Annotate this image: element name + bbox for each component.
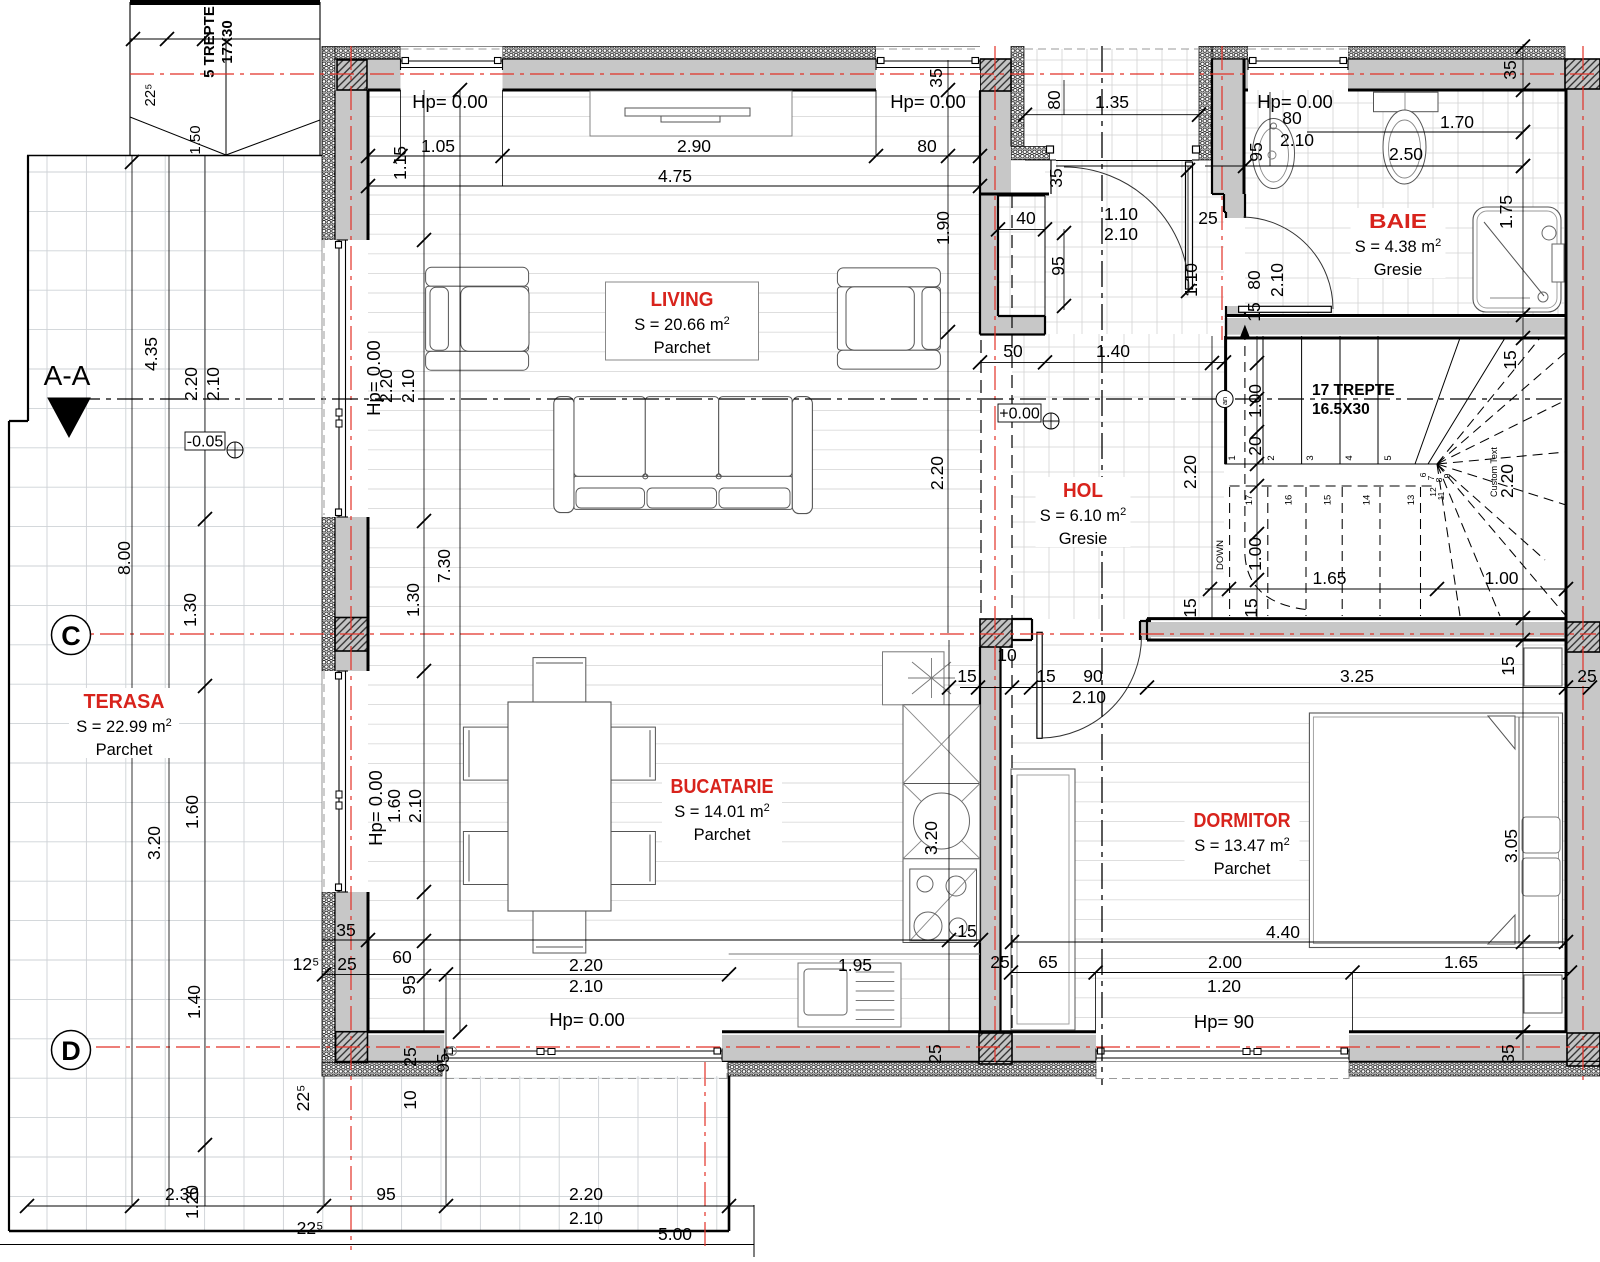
svg-text:S = 20.66 m2: S = 20.66 m2 (634, 315, 730, 334)
svg-text:7.30: 7.30 (434, 549, 454, 583)
svg-text:2.50: 2.50 (1389, 144, 1423, 164)
svg-text:2.20: 2.20 (569, 1184, 603, 1204)
svg-text:2.10: 2.10 (1280, 130, 1314, 150)
svg-text:2.10: 2.10 (1072, 687, 1106, 707)
svg-text:HOL: HOL (1063, 480, 1103, 502)
svg-text:DORMITOR: DORMITOR (1194, 810, 1291, 832)
svg-text:4.75: 4.75 (658, 166, 692, 186)
svg-text:LIVING: LIVING (651, 289, 714, 311)
svg-text:3.05: 3.05 (1501, 829, 1521, 863)
svg-text:Parchet: Parchet (96, 741, 153, 759)
svg-text:80: 80 (1044, 90, 1064, 110)
svg-text:40: 40 (1016, 208, 1036, 228)
svg-text:10: 10 (400, 1090, 420, 1110)
svg-text:S = 6.10 m2: S = 6.10 m2 (1040, 506, 1126, 525)
svg-text:2.10: 2.10 (398, 369, 418, 403)
svg-text:1.50: 1.50 (187, 125, 204, 154)
svg-text:2.20: 2.20 (181, 367, 201, 401)
svg-text:Parchet: Parchet (694, 826, 751, 844)
svg-text:Hp= 0.00: Hp= 0.00 (890, 91, 966, 112)
svg-text:60: 60 (392, 947, 412, 967)
svg-text:2.20: 2.20 (1497, 464, 1517, 498)
svg-text:4: 4 (1344, 455, 1355, 460)
svg-text:15: 15 (1241, 598, 1261, 617)
svg-text:25: 25 (1577, 666, 1596, 686)
svg-text:Hp= 0.00: Hp= 0.00 (549, 1009, 625, 1030)
svg-text:1.00: 1.00 (1245, 384, 1265, 418)
svg-text:4.35: 4.35 (141, 337, 161, 371)
svg-text:1.30: 1.30 (403, 583, 423, 617)
svg-text:1.60: 1.60 (384, 789, 404, 823)
svg-text:9: 9 (1442, 473, 1452, 478)
svg-text:1.60: 1.60 (182, 795, 202, 829)
svg-text:22⁵: 22⁵ (293, 1085, 313, 1112)
svg-text:Parchet: Parchet (1214, 860, 1271, 878)
svg-text:5: 5 (1383, 455, 1394, 460)
svg-text:22⁵: 22⁵ (142, 84, 159, 107)
svg-text:S = 4.38 m2: S = 4.38 m2 (1355, 237, 1441, 256)
svg-text:50: 50 (1003, 341, 1023, 361)
svg-text:16: 16 (1284, 495, 1295, 506)
svg-text:95: 95 (399, 975, 419, 994)
svg-text:2.20: 2.20 (927, 456, 947, 490)
svg-text:25: 25 (925, 1044, 945, 1063)
svg-text:Hp= 0.00: Hp= 0.00 (412, 91, 488, 112)
svg-text:1.30: 1.30 (180, 593, 200, 627)
svg-text:25: 25 (400, 1047, 420, 1066)
svg-text:22⁵: 22⁵ (297, 1218, 324, 1238)
svg-text:2.20: 2.20 (376, 369, 396, 403)
svg-text:5 TREPTE: 5 TREPTE (201, 6, 218, 78)
svg-text:1.00: 1.00 (1245, 537, 1265, 571)
svg-text:TERASA: TERASA (84, 691, 165, 713)
svg-text:Hp= 90: Hp= 90 (1194, 1011, 1254, 1032)
svg-text:BAIE: BAIE (1369, 211, 1427, 233)
svg-text:Gresie: Gresie (1059, 530, 1108, 548)
svg-text:4.40: 4.40 (1266, 922, 1300, 942)
svg-text:2.20: 2.20 (1180, 455, 1200, 489)
svg-text:2.10: 2.10 (569, 1208, 603, 1228)
svg-text:1.20: 1.20 (1207, 976, 1241, 996)
svg-text:3: 3 (1305, 455, 1316, 460)
svg-text:17X30: 17X30 (219, 20, 236, 63)
svg-text:-0.05: -0.05 (187, 434, 224, 451)
svg-text:+0.00: +0.00 (999, 406, 1040, 423)
svg-text:1.70: 1.70 (1440, 112, 1474, 132)
svg-text:2.10: 2.10 (405, 789, 425, 823)
svg-text:S = 14.01 m2: S = 14.01 m2 (674, 802, 770, 821)
svg-text:25: 25 (1198, 208, 1217, 228)
svg-text:2.10: 2.10 (1104, 224, 1138, 244)
svg-text:1.75: 1.75 (1496, 195, 1516, 229)
svg-text:BUCATARIE: BUCATARIE (671, 776, 774, 798)
svg-text:8.00: 8.00 (114, 541, 134, 575)
svg-text:2.10: 2.10 (569, 976, 603, 996)
svg-text:5.00: 5.00 (658, 1224, 692, 1244)
svg-text:11: 11 (1436, 491, 1446, 500)
svg-text:Hp= 0.00: Hp= 0.00 (365, 770, 386, 846)
svg-text:10: 10 (997, 645, 1017, 665)
svg-text:1.65: 1.65 (1312, 568, 1346, 588)
svg-text:D: D (61, 1036, 81, 1066)
svg-text:15: 15 (1500, 350, 1520, 369)
svg-text:Gresie: Gresie (1374, 261, 1423, 279)
svg-text:A-A: A-A (44, 360, 91, 391)
svg-text:S = 13.47 m2: S = 13.47 m2 (1194, 836, 1290, 855)
svg-text:1.40: 1.40 (184, 985, 204, 1019)
svg-text:14: 14 (1362, 495, 1373, 506)
svg-text:2: 2 (1266, 455, 1277, 460)
svg-text:80: 80 (1244, 270, 1264, 290)
svg-text:2.90: 2.90 (677, 136, 711, 156)
svg-text:15: 15 (1244, 302, 1264, 321)
svg-text:25: 25 (337, 954, 356, 974)
svg-text:95: 95 (1048, 256, 1068, 275)
svg-text:1.15: 1.15 (390, 146, 410, 180)
svg-text:3.20: 3.20 (921, 821, 941, 855)
svg-text:1.05: 1.05 (421, 136, 455, 156)
svg-text:15: 15 (1498, 656, 1518, 675)
svg-text:17: 17 (1244, 495, 1255, 506)
svg-text:80: 80 (917, 136, 937, 156)
svg-text:15: 15 (957, 921, 976, 941)
svg-text:65: 65 (1038, 952, 1057, 972)
svg-text:20: 20 (1245, 436, 1265, 456)
svg-text:95: 95 (1246, 142, 1266, 161)
svg-text:1.40: 1.40 (1096, 341, 1130, 361)
svg-text:1.35: 1.35 (1095, 92, 1129, 112)
svg-text:35: 35 (1500, 60, 1520, 79)
svg-text:an: an (1220, 397, 1229, 405)
svg-text:C: C (61, 621, 81, 651)
svg-text:95: 95 (376, 1184, 395, 1204)
svg-text:Parchet: Parchet (654, 339, 711, 357)
svg-text:13: 13 (1406, 495, 1417, 506)
svg-text:2.00: 2.00 (1208, 952, 1242, 972)
svg-text:DOWN: DOWN (1215, 540, 1226, 570)
svg-text:17 TREPTE: 17 TREPTE (1312, 382, 1395, 399)
svg-text:1.90: 1.90 (933, 211, 953, 245)
svg-text:2.10: 2.10 (1267, 263, 1287, 297)
svg-text:1.10: 1.10 (1104, 204, 1138, 224)
svg-text:1.95: 1.95 (838, 955, 872, 975)
svg-text:15: 15 (957, 666, 976, 686)
svg-text:35: 35 (1046, 168, 1066, 187)
svg-text:35: 35 (1498, 1044, 1518, 1063)
svg-text:3.20: 3.20 (144, 826, 164, 860)
svg-text:2.20: 2.20 (569, 955, 603, 975)
svg-text:2.10: 2.10 (203, 367, 223, 401)
svg-text:35: 35 (336, 920, 355, 940)
svg-text:3.25: 3.25 (1340, 666, 1374, 686)
svg-text:15: 15 (1036, 666, 1055, 686)
svg-text:1.00: 1.00 (1484, 568, 1518, 588)
svg-text:35: 35 (926, 68, 946, 87)
svg-text:95: 95 (433, 1053, 453, 1072)
svg-text:1: 1 (1227, 455, 1238, 460)
svg-text:15: 15 (1180, 598, 1200, 617)
svg-text:80: 80 (1282, 108, 1302, 128)
svg-text:25: 25 (990, 952, 1009, 972)
svg-text:90: 90 (1083, 666, 1103, 686)
svg-text:15: 15 (1323, 495, 1334, 506)
svg-text:1.10: 1.10 (1181, 263, 1201, 297)
svg-text:16.5X30: 16.5X30 (1312, 401, 1370, 418)
svg-text:12⁵: 12⁵ (293, 954, 320, 974)
svg-text:1.20: 1.20 (182, 1185, 202, 1219)
svg-text:S = 22.99 m2: S = 22.99 m2 (76, 717, 172, 736)
svg-text:1.65: 1.65 (1444, 952, 1478, 972)
